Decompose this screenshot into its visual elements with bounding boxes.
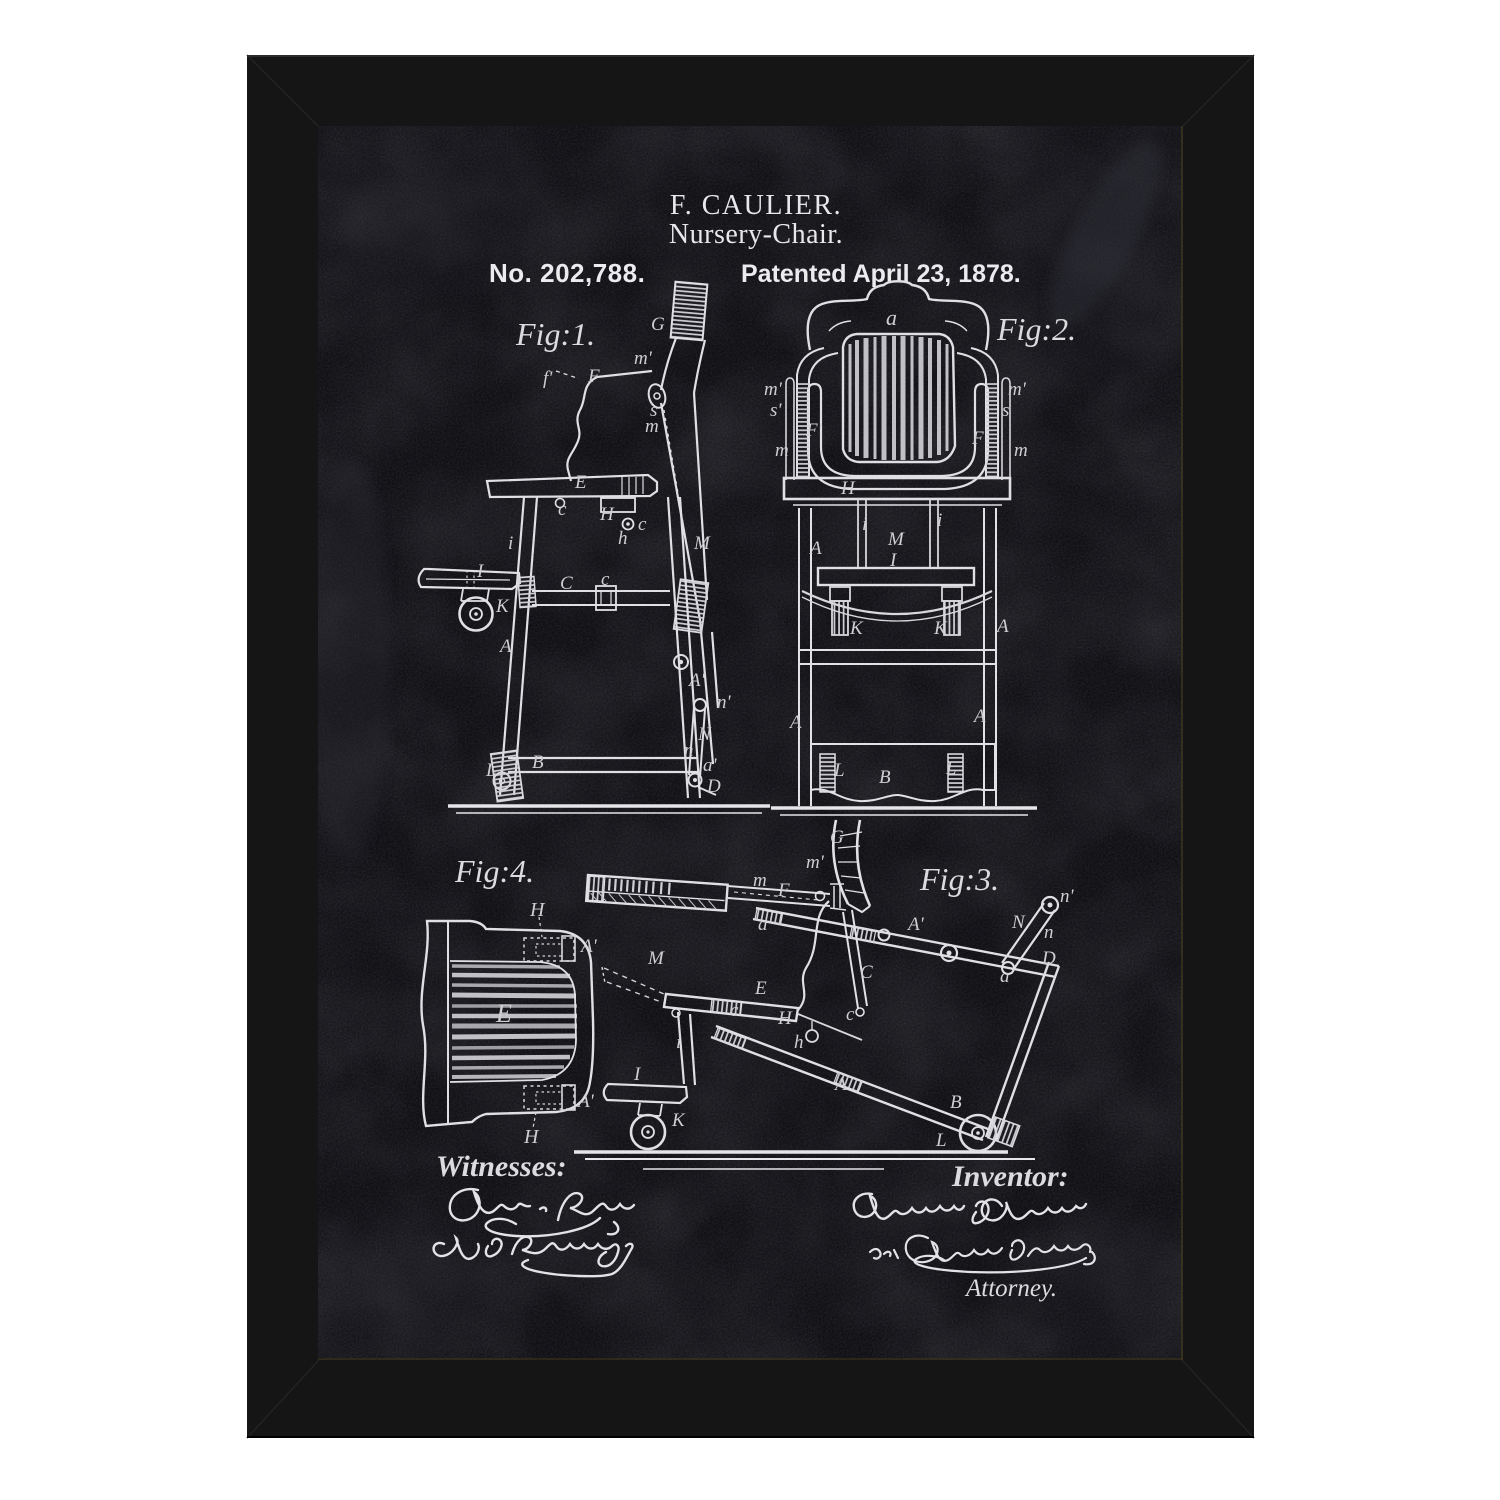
svg-text:K: K — [671, 1110, 686, 1131]
svg-text:A: A — [833, 1074, 847, 1095]
svg-text:Fig:1.: Fig:1. — [515, 316, 595, 352]
svg-text:A: A — [995, 616, 1009, 637]
svg-text:F': F' — [805, 420, 823, 441]
svg-text:s: s — [1002, 400, 1009, 421]
svg-text:m: m — [645, 416, 659, 437]
svg-text:H: H — [523, 1126, 540, 1148]
svg-text:Fig:2.: Fig:2. — [996, 311, 1076, 347]
svg-text:F: F — [587, 366, 600, 387]
svg-text:m': m' — [764, 379, 783, 400]
svg-text:m: m — [775, 440, 789, 461]
svg-text:i: i — [676, 1032, 681, 1053]
svg-text:N: N — [1011, 912, 1026, 933]
svg-text:A: A — [808, 538, 822, 559]
svg-text:a': a' — [703, 755, 718, 776]
svg-text:c: c — [846, 1004, 855, 1025]
svg-text:M: M — [647, 948, 665, 969]
svg-text:c: c — [730, 1000, 739, 1021]
svg-text:H: H — [777, 1008, 793, 1029]
svg-text:D: D — [706, 776, 721, 797]
svg-text:L: L — [945, 758, 957, 779]
svg-text:L: L — [485, 760, 497, 781]
svg-text:G: G — [651, 314, 665, 335]
svg-text:A': A' — [687, 670, 706, 691]
svg-text:c: c — [601, 569, 610, 590]
svg-text:E: E — [754, 978, 767, 999]
svg-text:B: B — [950, 1092, 962, 1113]
svg-text:Fig:4.: Fig:4. — [454, 853, 534, 889]
svg-text:K: K — [849, 618, 864, 639]
svg-text:n': n' — [1060, 886, 1075, 907]
svg-text:H: H — [599, 504, 615, 525]
svg-text:Nursery-Chair.: Nursery-Chair. — [669, 219, 843, 250]
svg-text:N: N — [697, 724, 712, 745]
svg-text:i: i — [508, 533, 513, 554]
svg-text:h: h — [794, 1032, 804, 1053]
svg-text:No. 202,788.: No. 202,788. — [489, 258, 645, 288]
svg-text:F: F — [777, 880, 790, 901]
svg-text:a': a' — [1000, 966, 1015, 987]
svg-text:A: A — [788, 712, 802, 733]
svg-text:E: E — [574, 472, 587, 493]
svg-text:D: D — [1041, 948, 1056, 969]
svg-text:C: C — [860, 962, 873, 983]
svg-text:A: A — [498, 636, 512, 657]
svg-text:M: M — [693, 533, 711, 554]
svg-text:G: G — [830, 827, 844, 848]
svg-text:a: a — [886, 305, 897, 330]
svg-text:a: a — [758, 914, 768, 935]
svg-text:Witnesses:: Witnesses: — [436, 1150, 567, 1183]
svg-text:n': n' — [717, 692, 732, 713]
svg-text:c: c — [638, 514, 647, 535]
svg-text:m': m' — [806, 852, 825, 873]
svg-text:i: i — [937, 510, 942, 531]
svg-text:K: K — [933, 618, 948, 639]
svg-text:L: L — [833, 760, 845, 781]
svg-text:m': m' — [1008, 379, 1027, 400]
svg-text:A: A — [972, 706, 986, 727]
svg-text:f': f' — [543, 368, 553, 389]
svg-text:m': m' — [634, 348, 653, 369]
svg-text:M: M — [887, 529, 905, 550]
svg-text:m: m — [753, 870, 767, 891]
svg-text:c: c — [558, 499, 567, 520]
svg-text:K: K — [495, 596, 510, 617]
svg-text:F: F — [971, 428, 984, 449]
svg-text:Inventor:: Inventor: — [951, 1160, 1069, 1193]
svg-text:B: B — [532, 752, 544, 773]
svg-text:n: n — [1044, 922, 1054, 943]
svg-text:C: C — [560, 573, 573, 594]
svg-text:B: B — [879, 767, 891, 788]
svg-text:h: h — [618, 528, 628, 549]
svg-text:E: E — [495, 999, 512, 1028]
svg-text:A': A' — [576, 1091, 595, 1112]
svg-text:m: m — [1014, 440, 1028, 461]
svg-text:A': A' — [579, 936, 598, 957]
svg-text:i: i — [862, 514, 867, 535]
svg-text:Fig:3.: Fig:3. — [919, 861, 999, 897]
svg-text:A': A' — [906, 914, 925, 935]
svg-text:Attorney.: Attorney. — [964, 1275, 1057, 1302]
svg-text:F. CAULIER.: F. CAULIER. — [670, 190, 842, 221]
svg-text:n: n — [684, 740, 694, 761]
svg-text:s': s' — [770, 400, 782, 421]
svg-text:L: L — [935, 1130, 947, 1151]
svg-text:H: H — [840, 478, 856, 499]
svg-text:Patented April 23, 1878.: Patented April 23, 1878. — [741, 260, 1021, 288]
svg-text:H: H — [529, 899, 546, 921]
